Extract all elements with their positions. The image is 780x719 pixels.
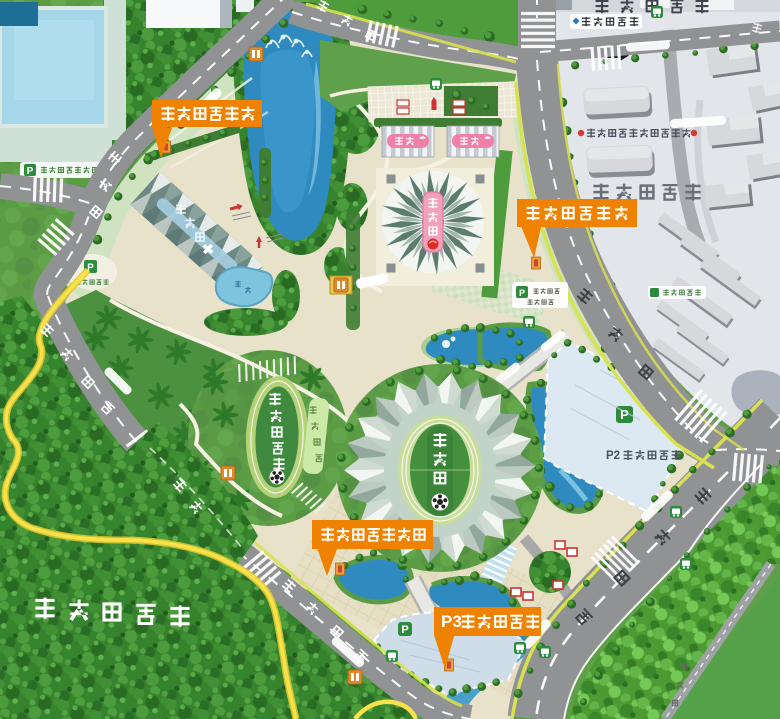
svg-text:P2: P2 [606,450,620,462]
svg-text:P3: P3 [441,612,462,631]
svg-text:P: P [401,624,408,636]
svg-text:P: P [620,407,629,422]
svg-text:P: P [519,288,525,298]
svg-text:P: P [27,166,34,177]
